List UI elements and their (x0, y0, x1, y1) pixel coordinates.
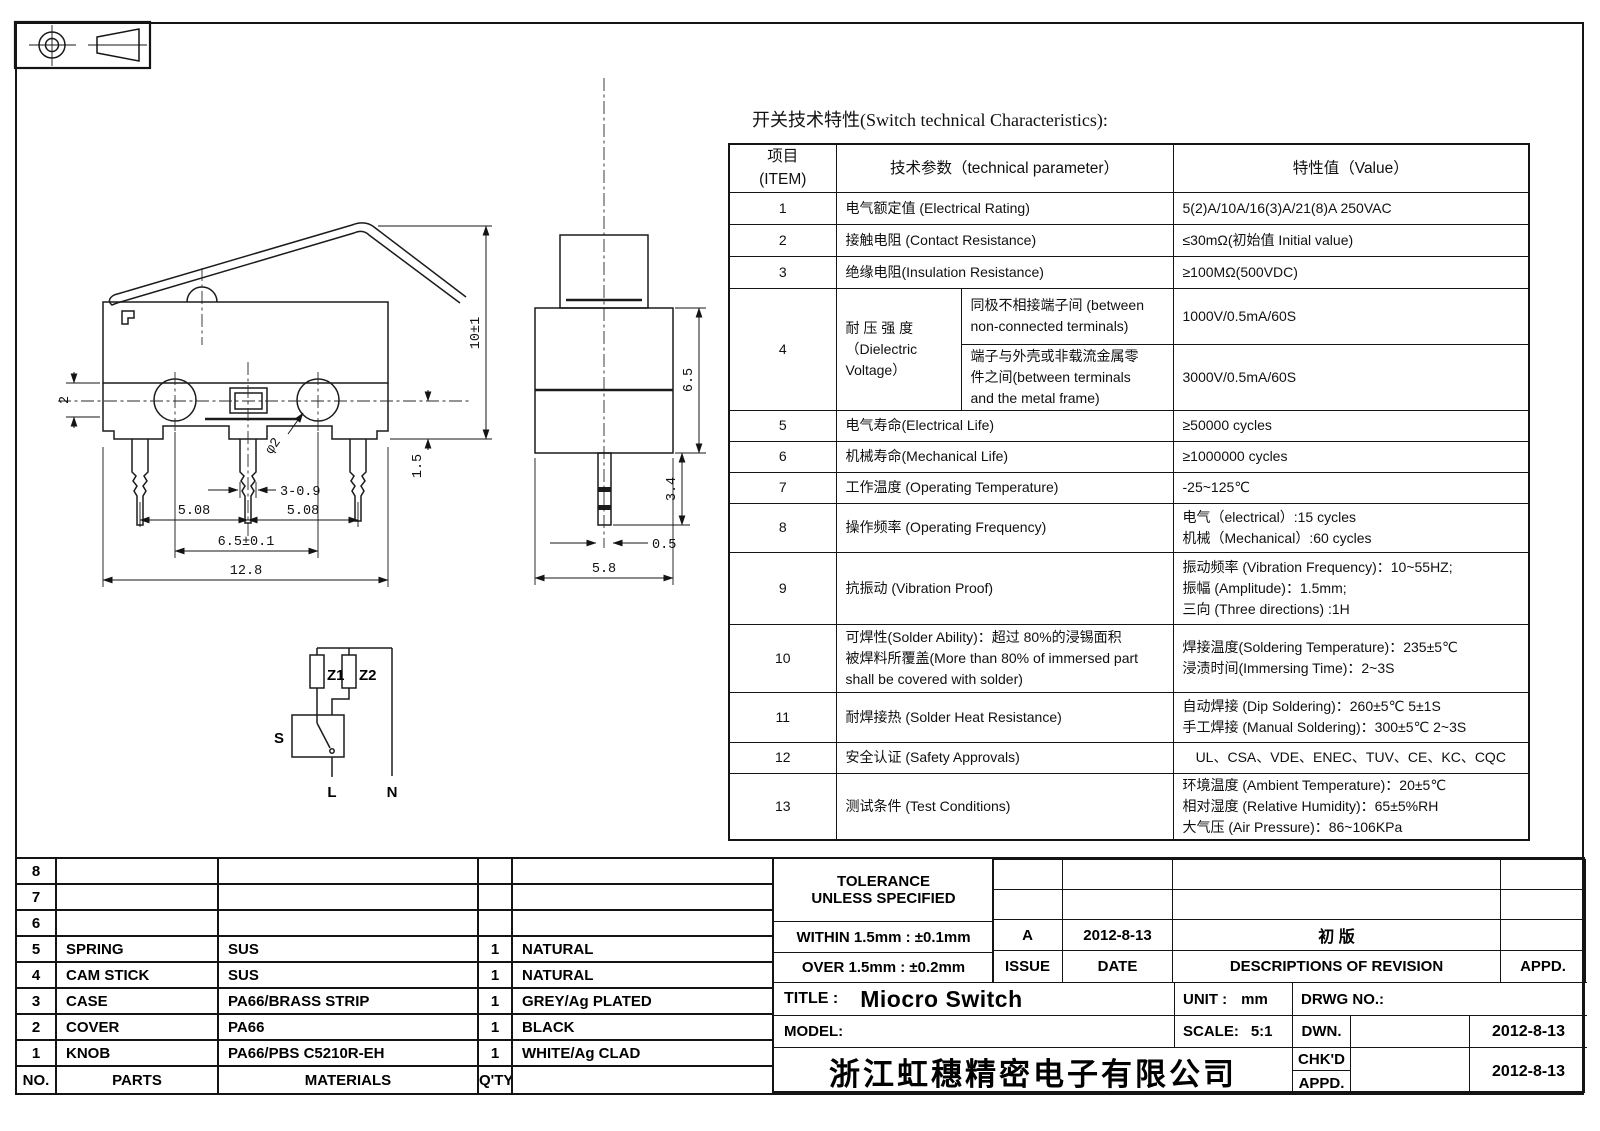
drwg-no-cell: DRWG NO.: (1292, 982, 1587, 1015)
spec-row: 8 操作频率 (Operating Frequency) 电气（electric… (729, 503, 1529, 552)
unit-cell: UNIT : mm (1174, 982, 1292, 1015)
side-view: 2 10±1 1.5 3-0.9 5.08 5.08 (58, 223, 492, 587)
chkd-label: CHK'D (1292, 1047, 1350, 1071)
dim-label: 6.5±0.1 (218, 535, 275, 550)
spec-row: 4 耐 压 强 度 （Dielectric Voltage） 同极不相接端子间 … (729, 288, 1529, 344)
spec-header-item: 项目 (ITEM) (729, 144, 836, 192)
title-cell: TITLE : Miocro Switch (774, 982, 1174, 1015)
dim-label: 5.08 (287, 504, 319, 519)
spec-header-value: 特性值（Value） (1173, 144, 1529, 192)
spec-row: 10 可焊性(Solder Ability)：超过 80%的浸锡面积 被焊料所覆… (729, 624, 1529, 692)
spec-row: 7 工作温度 (Operating Temperature) -25~125℃ (729, 472, 1529, 503)
tolerance-block: TOLERANCE UNLESS SPECIFIED (774, 859, 994, 921)
parts-row: 1 KNOB PA66/PBS C5210R-EH 1 WHITE/Ag CLA… (16, 1040, 773, 1066)
circuit-label-l: L (327, 784, 336, 801)
dim-label: 6.5 (682, 368, 697, 392)
tolerance-within: WITHIN 1.5mm : ±0.1mm (774, 921, 994, 952)
dwn-date: 2012-8-13 (1469, 1015, 1587, 1047)
appd-label: APPD. (1292, 1071, 1350, 1095)
parts-row: 5 SPRING SUS 1 NATURAL (16, 936, 773, 962)
company-name: 浙江虹穗精密电子有限公司 (774, 1047, 1292, 1095)
front-view: 6.5 3.4 0.5 5.8 (535, 78, 706, 585)
drawing-sheet: 开关技术特性(Switch technical Characteristics)… (0, 0, 1600, 1131)
circuit-label-n: N (387, 784, 398, 801)
revision-appd (1501, 920, 1586, 951)
revision-header-row: ISSUE DATE DESCRIPTIONS OF REVISION APPD… (993, 951, 1586, 983)
dwn-signature-cell (1350, 1015, 1469, 1047)
title-block: TOLERANCE UNLESS SPECIFIED WITHIN 1.5mm … (772, 857, 1585, 1093)
dim-label: 2 (58, 396, 73, 404)
unit-value: mm (1241, 991, 1268, 1008)
circuit-label-z2: Z2 (359, 667, 377, 684)
spec-row: 5 电气寿命(Electrical Life) ≥50000 cycles (729, 410, 1529, 441)
revision-issue: A (993, 920, 1063, 951)
circuit-label-s: S (274, 730, 284, 747)
parts-header-row: NO. PARTS MATERIALS Q'TY (16, 1066, 773, 1094)
dwn-label: DWN. (1292, 1015, 1350, 1047)
parts-row: 4 CAM STICK SUS 1 NATURAL (16, 962, 773, 988)
circuit-label-z1: Z1 (327, 667, 345, 684)
spec-row: 11 耐焊接热 (Solder Heat Resistance) 自动焊接 (D… (729, 692, 1529, 742)
revision-row (993, 890, 1586, 920)
spec-row: 9 抗振动 (Vibration Proof) 振动频率 (Vibration … (729, 552, 1529, 624)
dim-label: 3.4 (665, 477, 680, 501)
scale-cell: SCALE: 5:1 (1174, 1015, 1292, 1047)
scale-value: 5:1 (1251, 1023, 1273, 1040)
drawing-title: Miocro Switch (860, 986, 1022, 1013)
spec-row: 1 电气额定值 (Electrical Rating) 5(2)A/10A/16… (729, 192, 1529, 224)
dim-label: 10±1 (469, 317, 484, 349)
model-cell: MODEL: (774, 1015, 1174, 1047)
parts-table: 8 7 6 5 SPRING SUS 1 NATURAL (15, 857, 774, 1095)
chkd-signature-cell (1350, 1047, 1469, 1095)
chkd-date: 2012-8-13 (1469, 1047, 1587, 1095)
spec-row: 12 安全认证 (Safety Approvals) UL、CSA、VDE、EN… (729, 742, 1529, 773)
dim-label: 5.08 (178, 504, 210, 519)
circuit-diagram: Z1 Z2 S L N (274, 648, 397, 801)
tolerance-over: OVER 1.5mm : ±0.2mm (774, 952, 994, 982)
spec-row: 6 机械寿命(Mechanical Life) ≥1000000 cycles (729, 441, 1529, 472)
projection-symbol-icon (15, 22, 150, 68)
dim-label: 5.8 (592, 562, 616, 577)
spec-row: 13 测试条件 (Test Conditions) 环境温度 (Ambient … (729, 773, 1529, 840)
dim-label: 12.8 (230, 564, 262, 579)
revision-table: A 2012-8-13 初 版 ISSUE DATE DESCRIPTIONS … (992, 859, 1586, 983)
revision-row (993, 860, 1586, 890)
revision-description: 初 版 (1173, 920, 1501, 951)
dim-label: 3-0.9 (280, 485, 321, 500)
parts-row: 8 (16, 858, 773, 884)
parts-row: 2 COVER PA66 1 BLACK (16, 1014, 773, 1040)
spec-header-param: 技术参数（technical parameter） (836, 144, 1173, 192)
parts-row: 3 CASE PA66/BRASS STRIP 1 GREY/Ag PLATED (16, 988, 773, 1014)
spec-table: 项目 (ITEM) 技术参数（technical parameter） 特性值（… (728, 143, 1530, 841)
parts-row: 7 (16, 884, 773, 910)
dim-label: 1.5 (411, 454, 426, 478)
title-label: TITLE : (784, 990, 838, 1008)
revision-date: 2012-8-13 (1063, 920, 1173, 951)
revision-entry-row: A 2012-8-13 初 版 (993, 920, 1586, 951)
spec-row: 2 接触电阻 (Contact Resistance) ≤30mΩ(初始值 In… (729, 224, 1529, 256)
spec-header-row: 项目 (ITEM) 技术参数（technical parameter） 特性值（… (729, 144, 1529, 192)
parts-row: 6 (16, 910, 773, 936)
spec-row: 3 绝缘电阻(Insulation Resistance) ≥100MΩ(500… (729, 256, 1529, 288)
